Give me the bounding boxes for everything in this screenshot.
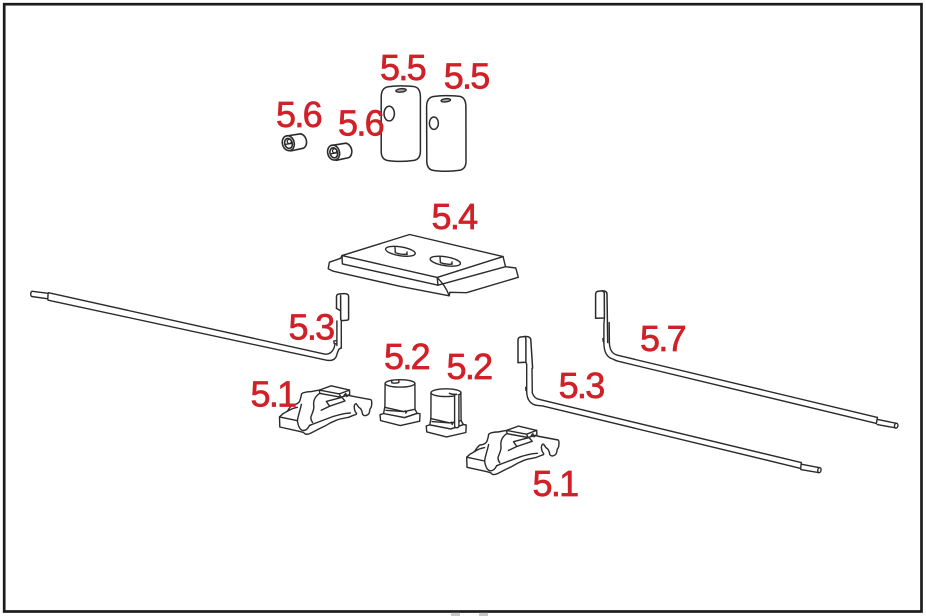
svg-text:5.7: 5.7 xyxy=(640,318,686,359)
svg-text:5.5: 5.5 xyxy=(444,56,490,97)
svg-text:5.3: 5.3 xyxy=(289,307,335,348)
svg-text:5.5: 5.5 xyxy=(380,47,426,88)
svg-text:5.2: 5.2 xyxy=(447,346,493,387)
svg-text:5.2: 5.2 xyxy=(384,336,430,377)
svg-text:5.1: 5.1 xyxy=(533,463,579,504)
svg-text:5.1: 5.1 xyxy=(251,374,297,415)
svg-text:5.6: 5.6 xyxy=(338,103,384,144)
svg-text:5.4: 5.4 xyxy=(432,196,478,237)
svg-text:5.6: 5.6 xyxy=(276,94,322,135)
svg-text:5.3: 5.3 xyxy=(559,365,605,406)
